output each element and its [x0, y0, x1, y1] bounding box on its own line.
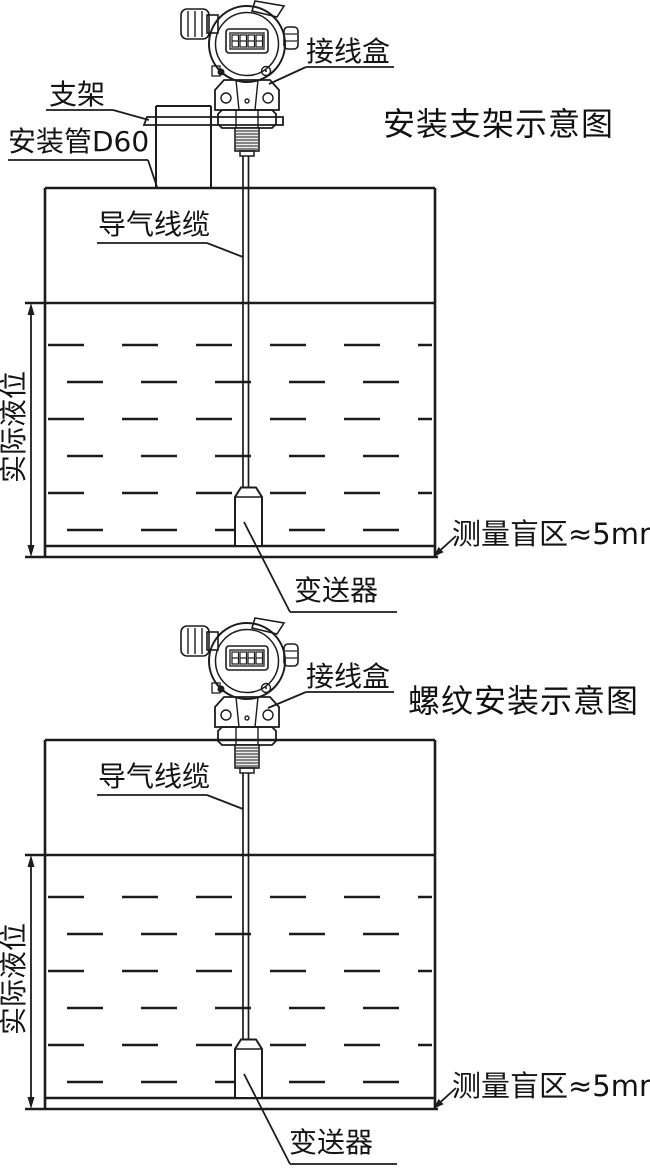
actual-level-label: 实际液位 [0, 919, 29, 1039]
transmitter-label: 变送器 [289, 1128, 373, 1158]
mounting-pipe-label: 安装管D60 [8, 127, 149, 157]
bracket-label: 支架 [49, 80, 105, 110]
bracket-plate [144, 117, 283, 125]
blind-zone-label: 测量盲区≈5mm [452, 519, 650, 550]
air-cable-label: 导气线缆 [98, 762, 210, 792]
diagram-canvas: 接线盒 支架 安装管D60 安装支架示意图 导气线缆 实际液位 测量盲区≈5mm… [0, 0, 650, 1171]
bracket-leader [46, 110, 149, 120]
bottom-diagram-title: 螺纹安装示意图 [408, 684, 639, 718]
junction-box-leader [269, 67, 394, 84]
junction-box-label: 接线盒 [306, 662, 390, 692]
blind-zone-label: 测量盲区≈5mm [452, 1071, 650, 1102]
junction-box-leader [268, 692, 394, 708]
air-cable [243, 156, 249, 487]
air-cable-label: 导气线缆 [98, 210, 210, 240]
junction-box-label: 接线盒 [306, 37, 390, 67]
transmitter-label: 变送器 [294, 576, 378, 606]
air-cable [243, 773, 249, 1039]
mounting-pipe-leader [8, 160, 157, 187]
bottom-diagram [25, 618, 456, 1164]
top-diagram-title: 安装支架示意图 [383, 107, 614, 141]
actual-level-label: 实际液位 [0, 367, 29, 487]
mounting-pipe [156, 106, 211, 188]
